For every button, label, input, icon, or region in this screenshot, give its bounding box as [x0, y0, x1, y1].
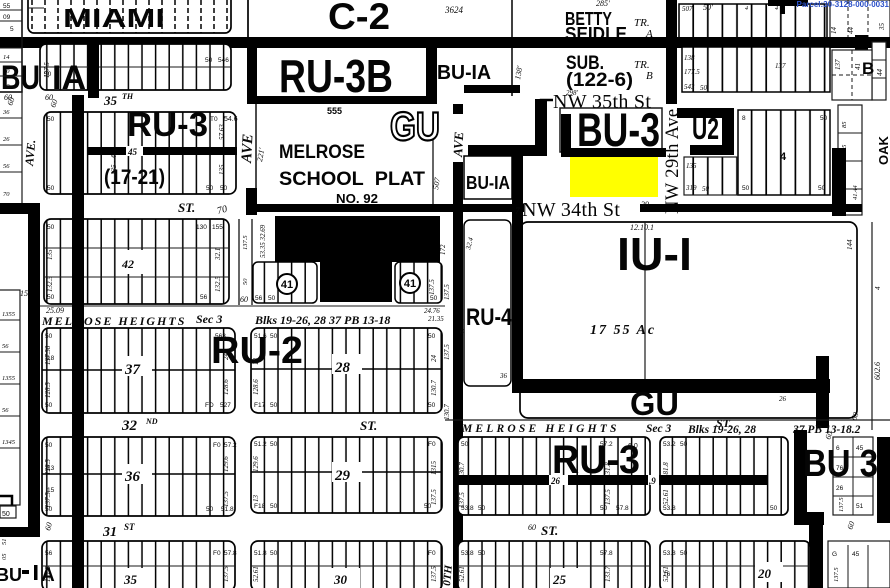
svg-text:50: 50: [47, 185, 55, 192]
svg-text:50: 50: [270, 441, 278, 448]
svg-text:137: 137: [775, 62, 786, 70]
svg-text:144: 144: [846, 239, 854, 250]
svg-text:50: 50: [205, 57, 213, 64]
svg-text:137: 137: [834, 59, 842, 70]
svg-text:50: 50: [430, 295, 438, 302]
svg-text:129.6: 129.6: [252, 456, 260, 472]
svg-text:15: 15: [20, 289, 28, 298]
svg-text:31: 31: [102, 525, 117, 540]
svg-text:41: 41: [281, 279, 293, 291]
svg-text:130.7: 130.7: [443, 404, 451, 420]
svg-text:52.61: 52.61: [458, 566, 466, 582]
svg-text:50: 50: [47, 294, 55, 301]
svg-text:1315: 1315: [430, 461, 438, 476]
svg-text:50: 50: [47, 224, 55, 231]
svg-text:36: 36: [124, 469, 141, 485]
svg-text:RU-3B: RU-3B: [279, 50, 393, 102]
svg-text:50: 50: [680, 550, 688, 557]
svg-text:F0: F0: [428, 550, 436, 557]
svg-text:137.5: 137.5: [44, 492, 52, 508]
svg-text:285′: 285′: [596, 0, 610, 8]
svg-text:BU 3: BU 3: [803, 443, 878, 485]
svg-text:1355: 1355: [2, 311, 16, 318]
svg-text:543: 543: [684, 83, 695, 91]
svg-text:555: 555: [327, 106, 342, 116]
svg-text:BU: BU: [0, 565, 22, 585]
svg-text:130.7: 130.7: [430, 380, 438, 396]
svg-text:50: 50: [47, 116, 55, 123]
svg-text:50: 50: [680, 441, 688, 448]
svg-text:137.5: 137.5: [458, 492, 466, 508]
svg-text:42: 42: [121, 257, 134, 271]
svg-text:50: 50: [270, 503, 278, 510]
svg-text:24.76: 24.76: [424, 307, 440, 315]
svg-text:50: 50: [600, 505, 608, 512]
svg-text:132.5: 132.5: [214, 276, 222, 292]
svg-text:172: 172: [439, 244, 447, 255]
svg-text:50′: 50′: [703, 3, 713, 12]
svg-text:54.6: 54.6: [224, 116, 238, 123]
svg-text:13: 13: [252, 495, 260, 503]
svg-text:137.5: 137.5: [604, 489, 612, 505]
svg-text:57.8: 57.8: [224, 550, 237, 557]
svg-text:A: A: [41, 565, 55, 586]
svg-text:37: 37: [124, 362, 141, 378]
svg-text:137.5: 137.5: [430, 489, 438, 505]
svg-text:138: 138: [684, 54, 695, 62]
svg-text:50: 50: [45, 402, 53, 409]
svg-text:137.5: 137.5: [222, 566, 230, 582]
svg-text:4: 4: [780, 151, 787, 163]
svg-text:41: 41: [404, 278, 416, 290]
svg-text:44: 44: [876, 69, 884, 77]
svg-text:(122-6): (122-6): [566, 70, 633, 91]
svg-text:41.44: 41.44: [852, 185, 859, 200]
svg-text:4: 4: [874, 286, 882, 290]
svg-text:4: 4: [775, 5, 778, 12]
svg-text:45: 45: [127, 147, 138, 157]
svg-text:G: G: [832, 551, 837, 558]
svg-text:GU: GU: [390, 105, 440, 149]
svg-text:OAK: OAK: [876, 136, 890, 166]
svg-text:13: 13: [47, 465, 55, 472]
svg-text:60: 60: [45, 93, 53, 102]
svg-text:137.5: 137.5: [838, 497, 845, 512]
svg-text:137.5: 137.5: [428, 279, 436, 295]
svg-text:ST.: ST.: [716, 416, 732, 430]
svg-text:135: 135: [686, 162, 697, 170]
svg-text:0TH: 0TH: [441, 564, 455, 586]
svg-text:32.1: 32.1: [214, 248, 222, 261]
svg-text:ST: ST: [124, 522, 135, 532]
svg-text:50: 50: [3, 83, 10, 90]
svg-text:50: 50: [3, 68, 10, 75]
svg-text:50: 50: [700, 84, 708, 92]
svg-text:T0: T0: [210, 116, 218, 123]
svg-text:AVE: AVE: [239, 134, 257, 165]
svg-text:32: 32: [121, 418, 138, 434]
svg-text:05: 05: [1, 553, 8, 560]
svg-text:137.5: 137.5: [430, 566, 438, 582]
svg-text:57.63: 57.63: [218, 124, 226, 140]
svg-text:60: 60: [4, 93, 12, 102]
svg-text:20: 20: [757, 566, 772, 581]
svg-text:132.5: 132.5: [46, 276, 54, 292]
svg-text:14: 14: [3, 54, 10, 61]
svg-text:53.2: 53.2: [663, 441, 676, 448]
svg-text:14: 14: [830, 27, 838, 35]
svg-text:AVE.: AVE.: [22, 139, 38, 167]
svg-text:16: 16: [663, 571, 671, 578]
svg-text:ST.: ST.: [541, 523, 558, 538]
svg-text:F18: F18: [254, 503, 266, 510]
svg-text:53.8: 53.8: [663, 550, 676, 557]
svg-text:ND: ND: [145, 417, 158, 426]
svg-text:44: 44: [847, 27, 855, 35]
svg-text:70: 70: [3, 191, 10, 198]
svg-text:50: 50: [461, 441, 469, 448]
svg-text:50: 50: [270, 402, 278, 409]
svg-text:50: 50: [242, 278, 249, 285]
svg-text:SCHOOL PLAT: SCHOOL PLAT: [279, 169, 425, 190]
svg-text:MELROSE HEIGHTS: MELROSE HEIGHTS: [461, 423, 620, 435]
svg-text:85: 85: [841, 121, 848, 128]
svg-text:Parcel:30-3128-000-0031: Parcel:30-3128-000-0031: [796, 0, 889, 9]
svg-text:29: 29: [334, 468, 351, 484]
svg-text:527: 527: [220, 402, 231, 409]
svg-text:128.5: 128.5: [44, 382, 52, 398]
svg-text:3624: 3624: [444, 5, 464, 15]
svg-text:57.2: 57.2: [224, 442, 237, 449]
svg-text:56: 56: [2, 343, 9, 350]
svg-text:MELROSE HEIGHTS: MELROSE HEIGHTS: [41, 314, 186, 328]
svg-text:TH: TH: [122, 92, 134, 101]
svg-text:B: B: [862, 59, 874, 78]
svg-text:BU-IA: BU-IA: [437, 62, 491, 84]
svg-text:50: 50: [702, 185, 710, 193]
svg-text:128.6: 128.6: [222, 379, 230, 395]
svg-text:57.8: 57.8: [616, 505, 629, 512]
svg-text:35: 35: [123, 572, 138, 587]
svg-text:26: 26: [836, 485, 844, 492]
svg-text:09: 09: [3, 14, 11, 21]
svg-text:50: 50: [206, 185, 214, 192]
svg-text:BU-3: BU-3: [577, 103, 660, 156]
svg-text:135: 135: [218, 164, 226, 175]
svg-text:MIAMI: MIAMI: [63, 3, 165, 33]
svg-text:137.5: 137.5: [242, 235, 249, 250]
svg-text:7: 7: [515, 206, 520, 216]
svg-text:4: 4: [745, 5, 748, 12]
svg-text:137.5: 137.5: [222, 491, 230, 507]
svg-text:51.8: 51.8: [254, 550, 267, 557]
svg-text:35: 35: [103, 93, 118, 108]
svg-text:F17: F17: [254, 402, 266, 409]
svg-text:60: 60: [240, 295, 248, 304]
svg-text:56: 56: [3, 163, 10, 170]
svg-text:C-2: C-2: [328, 0, 390, 37]
svg-text:Sec 3: Sec 3: [196, 312, 222, 326]
svg-text:135: 135: [46, 249, 54, 260]
svg-text:15: 15: [47, 487, 55, 494]
svg-text:52.61: 52.61: [252, 566, 260, 582]
svg-text:1345: 1345: [2, 439, 16, 446]
svg-text:137.5: 137.5: [443, 284, 451, 300]
svg-text:129.6: 129.6: [222, 456, 230, 472]
svg-text:52.61: 52.61: [662, 489, 670, 505]
svg-text:F0: F0: [428, 441, 436, 448]
svg-text:Blks 19-26, 28 37 PB 13-18: Blks 19-26, 28 37 PB 13-18: [254, 313, 390, 327]
svg-text:35: 35: [878, 23, 886, 32]
svg-text:55: 55: [3, 3, 11, 10]
svg-text:155: 155: [212, 224, 223, 231]
svg-text:50: 50: [45, 442, 53, 449]
svg-text:51.2: 51.2: [254, 441, 267, 448]
svg-text:137.5: 137.5: [443, 344, 451, 360]
svg-text:5: 5: [10, 26, 14, 33]
svg-text:NW 29th Ave: NW 29th Ave: [663, 109, 683, 214]
svg-text:IU-I: IU-I: [617, 228, 692, 280]
svg-text:26: 26: [550, 476, 561, 486]
svg-text:130: 130: [196, 224, 207, 231]
svg-text:50: 50: [206, 506, 214, 513]
svg-text:26: 26: [3, 136, 10, 143]
svg-text:NO. 92: NO. 92: [336, 191, 378, 206]
svg-text:507: 507: [682, 5, 693, 13]
svg-text:B: B: [646, 70, 653, 82]
svg-text:28: 28: [334, 360, 351, 376]
svg-text:U2: U2: [692, 111, 719, 146]
svg-text:60: 60: [528, 523, 536, 532]
svg-text:56: 56: [255, 295, 263, 302]
svg-text:,9: ,9: [648, 476, 656, 486]
svg-text:F0: F0: [213, 442, 221, 449]
svg-text:50: 50: [220, 185, 228, 192]
svg-text:50: 50: [428, 333, 436, 340]
svg-text:36: 36: [499, 372, 508, 380]
svg-text:RU-2: RU-2: [211, 330, 303, 372]
svg-text:50: 50: [2, 511, 10, 518]
svg-text:57.8: 57.8: [600, 550, 613, 557]
svg-text:17 55 Ac: 17 55 Ac: [590, 323, 656, 338]
svg-text:NW 34th St: NW 34th St: [522, 199, 620, 221]
svg-text:IA: IA: [52, 59, 86, 97]
svg-text:AVE: AVE: [450, 131, 466, 158]
svg-text:MELROSE: MELROSE: [279, 142, 365, 163]
svg-text:53.8: 53.8: [663, 505, 676, 512]
svg-text:GU: GU: [630, 385, 679, 422]
svg-text:137.5: 137.5: [43, 62, 51, 78]
svg-text:30: 30: [333, 572, 348, 587]
svg-text:45: 45: [852, 551, 860, 558]
svg-text:26: 26: [779, 395, 787, 403]
svg-text:50: 50: [742, 185, 750, 192]
svg-text:56: 56: [2, 407, 9, 414]
svg-text:128.6: 128.6: [252, 379, 260, 395]
svg-text:Sec 3: Sec 3: [646, 423, 671, 435]
svg-text:8: 8: [742, 115, 746, 122]
svg-text:RU-3: RU-3: [127, 106, 208, 144]
svg-text:RU-4: RU-4: [466, 304, 513, 331]
svg-text:(17-21): (17-21): [104, 166, 165, 189]
svg-text:51: 51: [856, 503, 864, 510]
svg-text:25: 25: [552, 572, 567, 587]
svg-text:50: 50: [428, 402, 436, 409]
svg-text:BU-IA: BU-IA: [466, 173, 510, 193]
svg-text:137.5: 137.5: [833, 567, 840, 582]
svg-text:50: 50: [268, 295, 276, 302]
svg-text:1355: 1355: [2, 375, 16, 382]
svg-text:50: 50: [820, 115, 828, 122]
svg-text:ST.: ST.: [178, 200, 195, 215]
svg-text:56: 56: [200, 294, 208, 301]
svg-text:546: 546: [218, 57, 229, 64]
svg-text:BU: BU: [1, 59, 40, 97]
svg-text:177.5: 177.5: [684, 68, 700, 76]
svg-text:39: 39: [640, 200, 649, 209]
svg-text:F0: F0: [213, 550, 221, 557]
svg-text:53.8: 53.8: [461, 550, 474, 557]
svg-text:50: 50: [478, 505, 486, 512]
svg-text:51: 51: [1, 539, 8, 546]
svg-text:602.6: 602.6: [873, 362, 882, 380]
svg-text:ST.: ST.: [360, 418, 377, 433]
svg-text:50: 50: [45, 333, 53, 340]
svg-text:21.35: 21.35: [428, 315, 444, 323]
svg-text:24: 24: [430, 355, 438, 363]
svg-text:319: 319: [685, 184, 697, 192]
svg-text:FD: FD: [205, 402, 214, 409]
svg-text:50: 50: [270, 550, 278, 557]
svg-text:41: 41: [854, 63, 862, 70]
svg-text:56: 56: [45, 550, 53, 557]
svg-text:53.35 32.69: 53.35 32.69: [259, 224, 267, 258]
svg-text:50: 50: [770, 505, 778, 512]
svg-text:50: 50: [478, 550, 486, 557]
svg-text:36: 36: [2, 109, 10, 116]
svg-text:133.7: 133.7: [604, 566, 612, 582]
svg-text:50: 50: [818, 185, 826, 192]
svg-text:18: 18: [47, 355, 55, 362]
svg-text:6: 6: [460, 328, 464, 336]
